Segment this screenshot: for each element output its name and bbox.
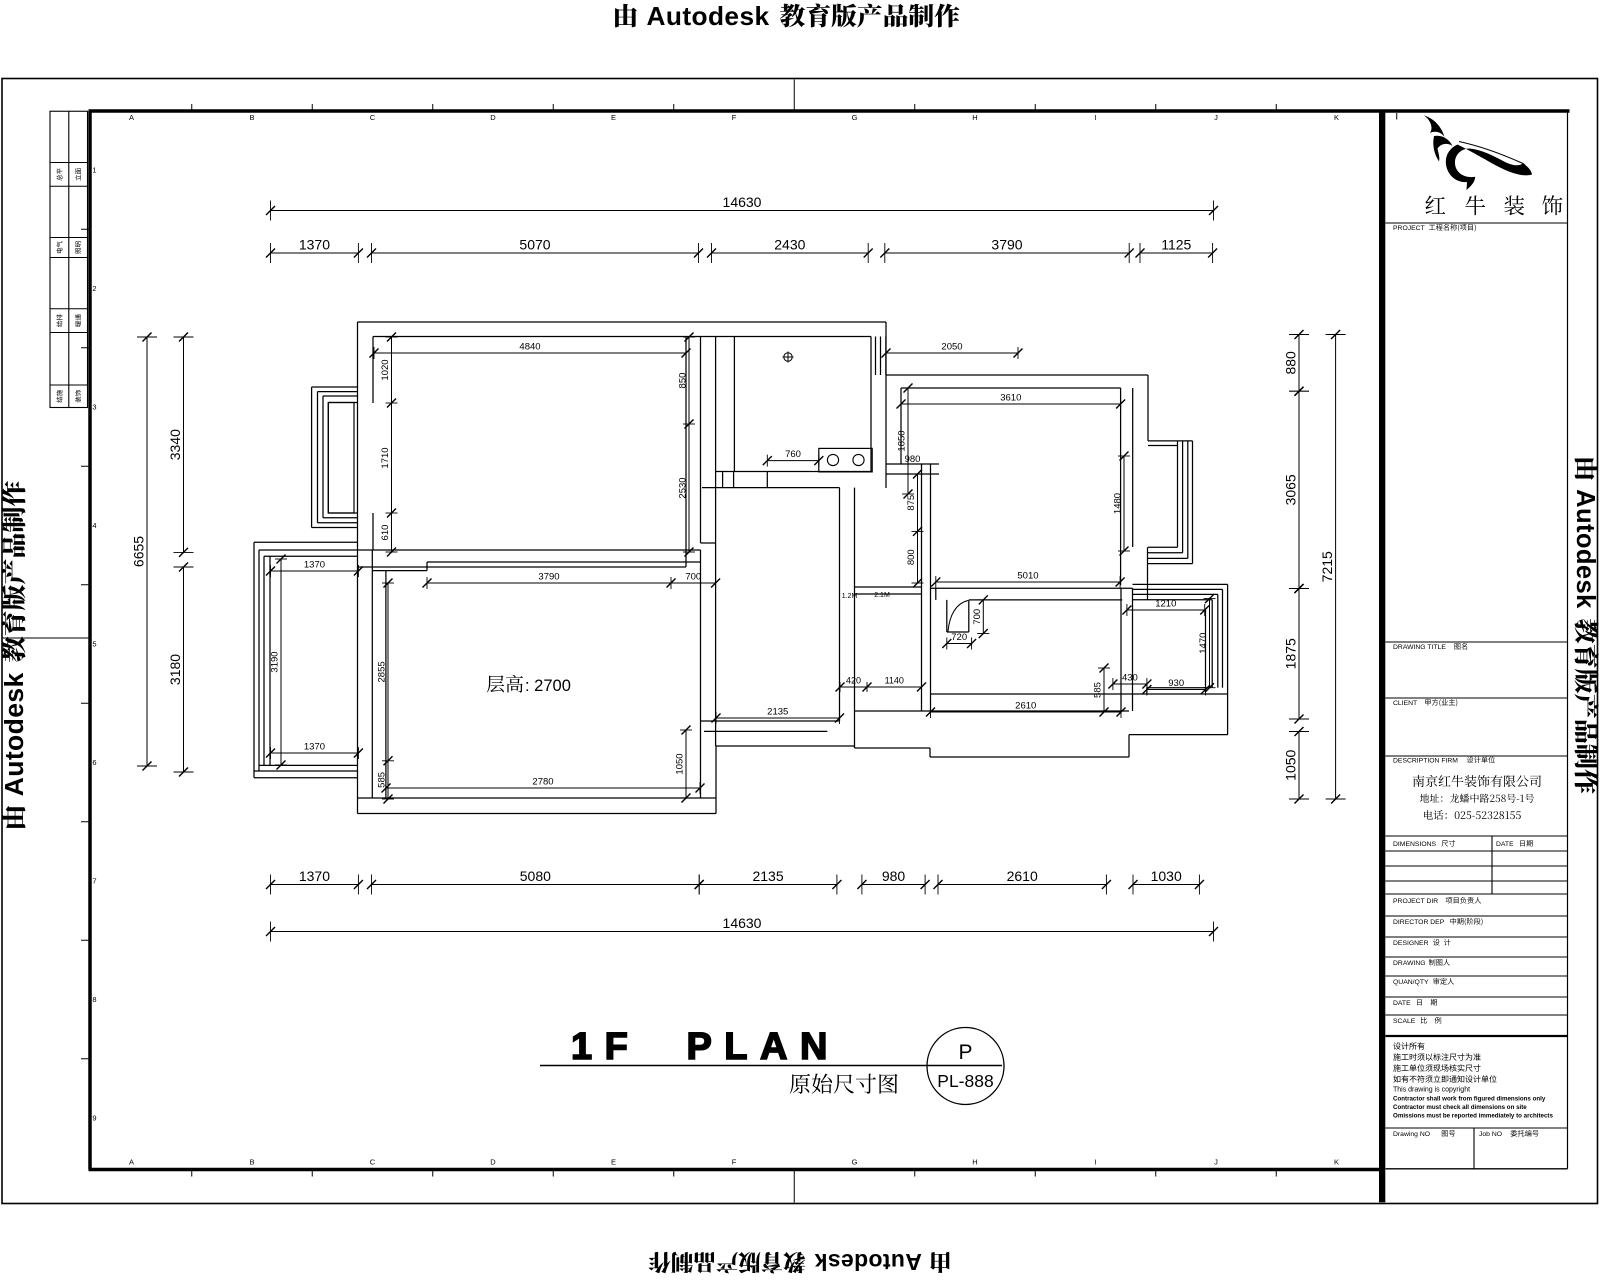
- svg-text:3340: 3340: [167, 429, 183, 460]
- svg-text:D: D: [490, 1158, 496, 1167]
- svg-text:DIMENSIONS: DIMENSIONS: [1393, 841, 1437, 848]
- svg-text:2135: 2135: [752, 868, 783, 884]
- svg-text:700: 700: [685, 572, 701, 583]
- svg-text:1710: 1710: [380, 447, 391, 468]
- svg-text:Drawing NO: Drawing NO: [1393, 1131, 1430, 1138]
- svg-text:4: 4: [92, 521, 96, 530]
- svg-text:3180: 3180: [167, 654, 183, 685]
- svg-text:4840: 4840: [519, 342, 540, 353]
- svg-text:5070: 5070: [519, 237, 550, 253]
- svg-text:1020: 1020: [380, 359, 391, 380]
- svg-text:1850: 1850: [897, 430, 908, 451]
- svg-text:2610: 2610: [1015, 701, 1036, 712]
- svg-text:A: A: [129, 113, 134, 122]
- svg-text:PROJECT DIR: PROJECT DIR: [1393, 898, 1438, 905]
- svg-text:2610: 2610: [1007, 868, 1038, 884]
- svg-text:5010: 5010: [1017, 571, 1038, 582]
- svg-text:D: D: [490, 113, 496, 122]
- svg-text:B: B: [249, 1158, 254, 1167]
- svg-text:720: 720: [951, 632, 967, 643]
- svg-text:2430: 2430: [774, 237, 805, 253]
- svg-text:1370: 1370: [299, 237, 330, 253]
- svg-text:610: 610: [380, 525, 391, 541]
- svg-text:1050: 1050: [1283, 749, 1299, 780]
- svg-text:: 2700: : 2700: [525, 677, 571, 695]
- svg-text:DATE: DATE: [1393, 1000, 1411, 1007]
- svg-text:F: F: [732, 113, 737, 122]
- svg-text:6655: 6655: [131, 536, 147, 567]
- svg-text:14630: 14630: [723, 915, 762, 931]
- svg-text:3: 3: [92, 403, 96, 412]
- svg-text:K: K: [1334, 1158, 1339, 1167]
- svg-text:I: I: [1094, 1158, 1096, 1167]
- svg-text:PROJECT: PROJECT: [1393, 225, 1425, 232]
- svg-text:P: P: [958, 1041, 972, 1064]
- svg-text:2530: 2530: [678, 477, 689, 498]
- svg-text:585: 585: [1093, 682, 1104, 698]
- svg-text:980: 980: [882, 868, 906, 884]
- svg-text:5080: 5080: [520, 868, 551, 884]
- svg-text:1875: 1875: [1283, 638, 1299, 669]
- svg-text:Contractor shall work from fig: Contractor shall work from figured dimen…: [1393, 1096, 1546, 1103]
- svg-text:This drawing is copyright: This drawing is copyright: [1393, 1087, 1470, 1094]
- svg-text:7: 7: [92, 877, 96, 886]
- svg-text:1F PLAN: 1F PLAN: [571, 1026, 840, 1068]
- svg-text:DRAWING TITLE: DRAWING TITLE: [1393, 644, 1446, 651]
- svg-text:DRAWING: DRAWING: [1393, 960, 1426, 967]
- svg-text:H: H: [972, 113, 977, 122]
- svg-text:H: H: [972, 1158, 977, 1167]
- svg-text:J: J: [1214, 1158, 1218, 1167]
- svg-text:1480: 1480: [1113, 493, 1124, 514]
- svg-text:Omissions must be reported imm: Omissions must be reported immediately t…: [1393, 1113, 1553, 1120]
- svg-text:SCALE: SCALE: [1393, 1018, 1416, 1025]
- svg-text:1050: 1050: [675, 753, 686, 774]
- svg-text:1.2M: 1.2M: [842, 593, 858, 600]
- svg-text:760: 760: [785, 449, 801, 460]
- svg-text:980: 980: [905, 454, 921, 465]
- svg-text:6: 6: [92, 758, 96, 767]
- svg-text:430: 430: [1122, 673, 1138, 684]
- svg-text:700: 700: [972, 609, 983, 625]
- svg-text:PL-888: PL-888: [937, 1071, 993, 1091]
- svg-text:8: 8: [92, 995, 96, 1004]
- svg-text:420: 420: [846, 676, 861, 686]
- svg-text:2135: 2135: [767, 707, 788, 718]
- svg-text:1370: 1370: [304, 560, 325, 571]
- svg-text:2780: 2780: [532, 777, 553, 788]
- svg-text:800: 800: [906, 549, 917, 565]
- svg-text:C: C: [370, 113, 376, 122]
- svg-text:850: 850: [678, 373, 689, 389]
- svg-text:Job NO: Job NO: [1479, 1131, 1502, 1138]
- svg-text:14630: 14630: [723, 194, 762, 210]
- svg-text:K: K: [1334, 113, 1339, 122]
- svg-text:1140: 1140: [885, 676, 904, 686]
- svg-text:3065: 3065: [1283, 474, 1299, 505]
- svg-text:1470: 1470: [1198, 633, 1209, 654]
- svg-text:9: 9: [92, 1114, 96, 1123]
- svg-text:DATE: DATE: [1496, 841, 1514, 848]
- svg-text:Contractor must check all dime: Contractor must check all dimensions on …: [1393, 1104, 1527, 1111]
- svg-text:C: C: [370, 1158, 376, 1167]
- svg-text:1: 1: [92, 166, 96, 175]
- svg-text:5: 5: [92, 640, 96, 649]
- svg-text:DESIGNER: DESIGNER: [1393, 940, 1429, 947]
- svg-text:2855: 2855: [377, 661, 388, 682]
- svg-text:7215: 7215: [1319, 551, 1335, 582]
- svg-text:CLIENT: CLIENT: [1393, 700, 1417, 707]
- svg-text:F: F: [732, 1158, 737, 1167]
- svg-text:J: J: [1214, 113, 1218, 122]
- svg-text:2.1M: 2.1M: [874, 592, 890, 599]
- svg-text:1125: 1125: [1161, 237, 1191, 253]
- svg-text:E: E: [611, 1158, 616, 1167]
- svg-text:930: 930: [1168, 678, 1184, 689]
- svg-text:G: G: [852, 113, 858, 122]
- svg-text:875: 875: [906, 495, 917, 511]
- svg-text:3790: 3790: [538, 572, 559, 583]
- svg-text:2050: 2050: [941, 342, 962, 353]
- svg-text:880: 880: [1283, 351, 1299, 375]
- svg-text:2: 2: [92, 284, 96, 293]
- svg-text:3610: 3610: [1000, 393, 1021, 404]
- svg-text:A: A: [129, 1158, 134, 1167]
- svg-text:3790: 3790: [991, 237, 1022, 253]
- svg-text:1370: 1370: [299, 868, 330, 884]
- svg-text:3190: 3190: [270, 651, 281, 672]
- svg-text:G: G: [852, 1158, 858, 1167]
- svg-text:I: I: [1094, 113, 1096, 122]
- svg-text:DIRECTOR DEP: DIRECTOR DEP: [1393, 919, 1445, 926]
- svg-text:QUAN/QTY: QUAN/QTY: [1393, 979, 1429, 986]
- svg-text:B: B: [249, 113, 254, 122]
- svg-text:E: E: [611, 113, 616, 122]
- svg-text:1370: 1370: [304, 742, 325, 753]
- svg-text:DESCRIPTION FIRM: DESCRIPTION FIRM: [1393, 758, 1458, 765]
- svg-text:1030: 1030: [1151, 868, 1182, 884]
- svg-text:1210: 1210: [1155, 599, 1176, 610]
